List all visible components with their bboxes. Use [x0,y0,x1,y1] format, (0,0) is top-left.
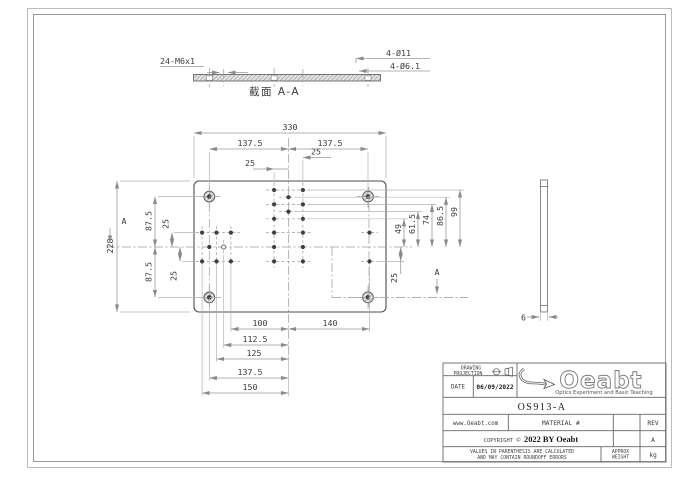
rev-label: REV [647,420,659,427]
dim-right-99: 99 [449,207,459,217]
section-bar [194,75,381,82]
thru-callout: 4-Ø6.1 [390,61,420,71]
open-hole [222,245,226,249]
thread-callout: 24-M6x1 [160,56,195,66]
dim-thickness: 6 [521,313,526,323]
copyright-text: 2022 BY Oeabt [524,435,578,444]
dim-left-25-upper: 25 [161,219,171,229]
dim-bottom-125: 125 [247,348,262,358]
cbore-hole [357,286,380,309]
date-label: DATE [451,385,465,391]
side-view: 6 [521,180,558,323]
material-label: MATERIAL # [542,420,580,427]
cbore-hole [198,286,221,309]
projection-label-line1: DRAWING [461,366,481,372]
dim-bottom-150: 150 [243,382,258,392]
dim-upper-875: 87.5 [144,211,154,231]
title-block: DRAWING PROJECTION DATE 06/09/2022 Oeabt… [443,363,666,462]
dim-right-49: 49 [393,224,403,234]
dim-right-615: 61.5 [407,214,417,234]
centerlines [106,138,468,356]
part-number: OS913-A [518,402,567,413]
cbore-callout: 4-Ø11 [386,48,411,58]
logo-tagline: Optics Experiment and Basic Teaching [555,390,653,396]
dim-half-right: 137.5 [318,138,343,148]
copyright-symbol: © [517,437,521,444]
cbore-hole [198,185,221,208]
dim-right-865: 86.5 [435,206,445,226]
rev-value: A [651,437,655,444]
dim-top-25-left: 25 [245,158,255,168]
dim-lower-875: 87.5 [144,262,154,282]
weight-label-line2: WEIGHT [612,455,629,461]
logo-arrow-icon [520,369,547,385]
dim-bottom-1375: 137.5 [238,367,263,377]
dim-bottom-140: 140 [323,318,338,328]
projection-label-line2: PROJECTION [454,371,483,377]
dim-left-25-lower: 25 [169,271,179,281]
section-mark-a-right: A [435,267,440,277]
extension-lines [120,136,548,396]
dim-bottom-100: 100 [253,318,268,328]
section-mark-a-left: A [122,216,127,226]
weight-unit: kg [649,452,657,459]
logo: Oeabt Optics Experiment and Basic Teachi… [520,368,653,396]
date-value: 06/09/2022 [476,384,514,391]
copyright-label: COPYRIGHT [484,438,514,444]
section-view: 24-M6x1 4-Ø11 4-Ø6.1 截面 A-A [160,48,430,98]
weight-label-line1: APPROX [612,449,629,455]
dim-right-74: 74 [421,215,431,225]
dim-overall-width: 330 [283,122,298,132]
disclaimer-line1: VALUES IN PARENTHESIS ARE CALCULATED [470,449,574,455]
dim-right-25: 25 [389,273,399,283]
first-angle-projection-icon [492,367,513,376]
dimension-texts: 330 137.5 137.5 25 25 228 87.5 87.5 25 2… [105,122,459,392]
website: www.Oeabt.com [453,421,499,427]
dim-top-25-right: 25 [311,147,321,157]
disclaimer-line2: AND MAY CONTAIN ROUNDOFF ERRORS [477,455,567,461]
side-view-outline [541,180,548,312]
dim-bottom-1125: 112.5 [243,334,268,344]
drawing-sheet: 24-M6x1 4-Ø11 4-Ø6.1 截面 A-A [0,0,700,478]
dim-half-left: 137.5 [238,138,263,148]
plan-view: 330 137.5 137.5 25 25 228 87.5 87.5 25 2… [105,122,548,396]
tapped-holes [200,188,372,264]
section-caption: 截面 A-A [249,85,300,98]
